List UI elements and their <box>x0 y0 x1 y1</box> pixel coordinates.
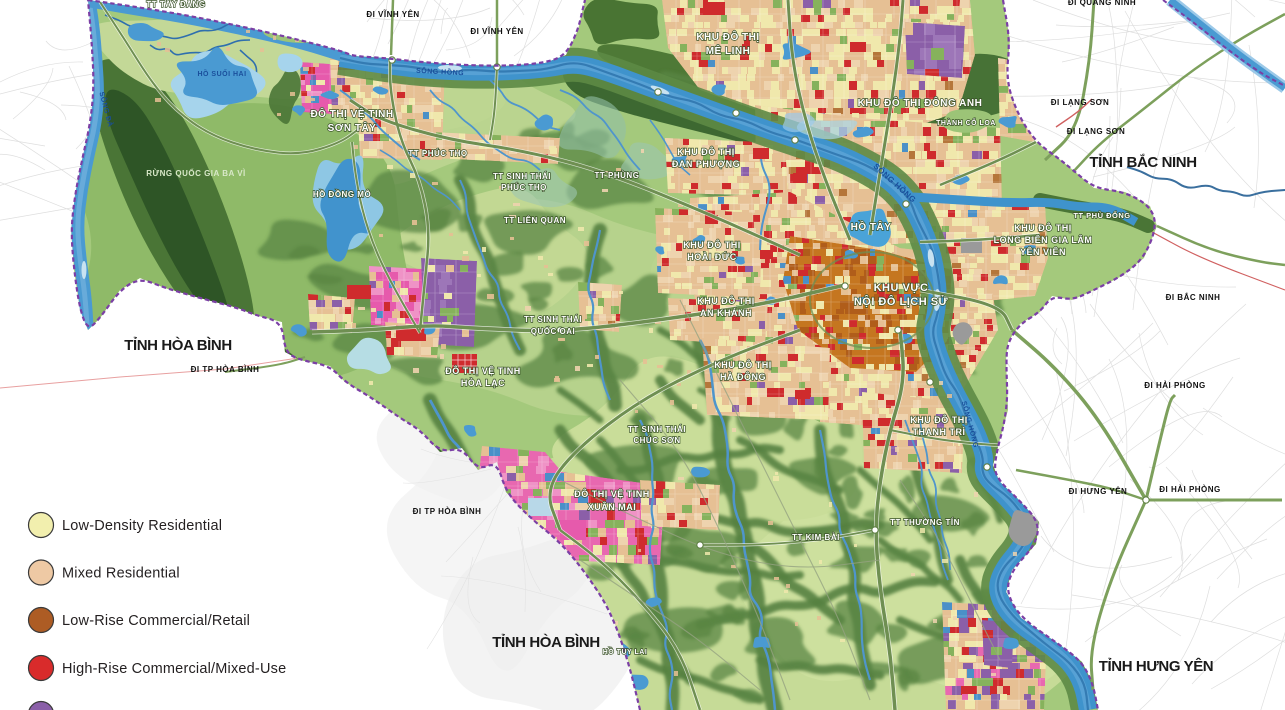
svg-text:TỈNH HÒA BÌNH: TỈNH HÒA BÌNH <box>124 336 232 354</box>
svg-text:LONG BIÊN GIA LÂM: LONG BIÊN GIA LÂM <box>994 234 1093 245</box>
svg-text:SƠN TÂY: SƠN TÂY <box>328 121 377 134</box>
svg-text:TT SINH THÁI: TT SINH THÁI <box>524 315 582 324</box>
svg-text:Low-Density Residential: Low-Density Residential <box>62 518 222 534</box>
svg-text:ĐI VĨNH YÊN: ĐI VĨNH YÊN <box>470 27 523 36</box>
svg-text:TỈNH BẮC NINH: TỈNH BẮC NINH <box>1089 153 1196 171</box>
svg-text:ĐI LẠNG SƠN: ĐI LẠNG SƠN <box>1051 98 1110 107</box>
svg-text:ĐÔ THỊ VỆ TINH: ĐÔ THỊ VỆ TINH <box>574 488 650 499</box>
svg-text:TT SINH THÁI: TT SINH THÁI <box>628 425 686 434</box>
svg-text:KHU ĐÔ THỊ: KHU ĐÔ THỊ <box>683 239 741 250</box>
svg-text:HÀ ĐÔNG: HÀ ĐÔNG <box>720 371 766 382</box>
svg-text:KHU ĐÔ THỊ ĐÔNG ANH: KHU ĐÔ THỊ ĐÔNG ANH <box>858 96 983 109</box>
svg-text:KHU ĐÔ THỊ: KHU ĐÔ THỊ <box>677 146 735 157</box>
svg-text:TỈNH HƯNG YÊN: TỈNH HƯNG YÊN <box>1099 657 1213 675</box>
svg-text:ĐI HẢI PHÒNG: ĐI HẢI PHÒNG <box>1144 381 1206 390</box>
svg-text:AN KHÁNH: AN KHÁNH <box>700 308 752 318</box>
svg-text:QUỐC OAI: QUỐC OAI <box>531 326 575 336</box>
svg-text:YÊN VIÊN: YÊN VIÊN <box>1020 246 1066 257</box>
svg-text:KHU ĐÔ THỊ: KHU ĐÔ THỊ <box>910 414 968 425</box>
svg-text:ĐI HẢI PHÒNG: ĐI HẢI PHÒNG <box>1159 485 1221 494</box>
svg-text:TT PHÙNG: TT PHÙNG <box>595 171 640 180</box>
svg-text:ĐI HƯNG YÊN: ĐI HƯNG YÊN <box>1069 487 1128 496</box>
svg-text:ĐAN PHƯỢNG: ĐAN PHƯỢNG <box>672 159 740 169</box>
svg-text:HÒA LẠC: HÒA LẠC <box>461 377 505 388</box>
svg-text:TT TÂY ĐẰNG: TT TÂY ĐẰNG <box>146 0 205 9</box>
svg-text:KHU VỰC: KHU VỰC <box>874 282 929 294</box>
svg-text:ĐI LẠNG SƠN: ĐI LẠNG SƠN <box>1067 127 1126 136</box>
svg-text:THÀNH CỔ LOA: THÀNH CỔ LOA <box>936 118 996 127</box>
svg-text:KHU ĐÔ THỊ: KHU ĐÔ THỊ <box>714 359 772 370</box>
svg-text:PHÚC THỌ: PHÚC THỌ <box>501 183 547 192</box>
svg-text:ĐI QUẢNG NINH: ĐI QUẢNG NINH <box>1068 0 1136 7</box>
svg-text:High-Rise Commercial/Mixed-Use: High-Rise Commercial/Mixed-Use <box>62 661 286 677</box>
svg-text:NỘI ĐÔ LỊCH SỬ: NỘI ĐÔ LỊCH SỬ <box>854 295 949 308</box>
svg-text:TT SINH THÁI: TT SINH THÁI <box>493 172 551 181</box>
svg-text:TT PHÙ ĐỔNG: TT PHÙ ĐỔNG <box>1073 211 1130 220</box>
svg-text:TỈNH HÒA BÌNH: TỈNH HÒA BÌNH <box>492 633 600 651</box>
svg-text:ĐI TP HÒA BÌNH: ĐI TP HÒA BÌNH <box>191 365 260 374</box>
svg-text:ĐÔ THỊ VỆ TINH: ĐÔ THỊ VỆ TINH <box>445 365 521 376</box>
svg-text:TT KIM BÀI: TT KIM BÀI <box>792 533 840 542</box>
svg-text:MÊ LINH: MÊ LINH <box>706 44 751 57</box>
svg-text:HOÀI ĐỨC: HOÀI ĐỨC <box>687 251 736 262</box>
svg-text:KHU ĐÔ THỊ: KHU ĐÔ THỊ <box>697 295 755 306</box>
svg-text:ĐI VĨNH YÊN: ĐI VĨNH YÊN <box>366 10 419 19</box>
svg-text:ĐI TP HÒA BÌNH: ĐI TP HÒA BÌNH <box>413 507 482 516</box>
svg-text:RỪNG QUỐC GIA BA VÌ: RỪNG QUỐC GIA BA VÌ <box>146 168 246 178</box>
svg-text:TT LIÊN QUAN: TT LIÊN QUAN <box>504 216 566 225</box>
svg-text:KHU ĐÔ THỊ: KHU ĐÔ THỊ <box>1014 222 1072 233</box>
svg-text:XUÂN MAI: XUÂN MAI <box>588 501 637 512</box>
svg-text:CHÚC SƠN: CHÚC SƠN <box>633 436 680 445</box>
svg-text:Low-Rise Commercial/Retail: Low-Rise Commercial/Retail <box>62 613 250 629</box>
svg-text:HỒ TÂY: HỒ TÂY <box>851 220 892 233</box>
svg-text:HỒ ĐỒNG MÔ: HỒ ĐỒNG MÔ <box>313 189 371 199</box>
svg-text:ĐÔ THỊ VỆ TINH: ĐÔ THỊ VỆ TINH <box>310 107 393 120</box>
svg-text:Mixed Residential: Mixed Residential <box>62 566 180 582</box>
svg-text:TT PHÚC THỌ: TT PHÚC THỌ <box>408 149 467 158</box>
svg-text:THANH TRÌ: THANH TRÌ <box>913 427 966 437</box>
svg-text:ĐI BẮC NINH: ĐI BẮC NINH <box>1166 293 1221 302</box>
svg-text:KHU ĐÔ THỊ: KHU ĐÔ THỊ <box>696 30 759 43</box>
svg-text:TT THƯỜNG TÍN: TT THƯỜNG TÍN <box>890 518 960 527</box>
